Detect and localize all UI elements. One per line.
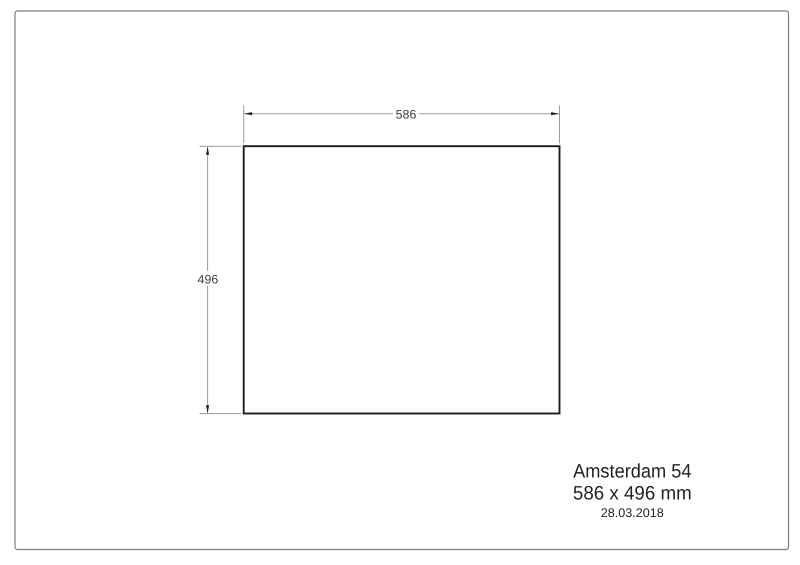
svg-text:496: 496: [198, 272, 219, 286]
svg-text:586: 586: [396, 107, 417, 121]
svg-text:586 x 496 mm: 586 x 496 mm: [573, 483, 692, 505]
svg-text:28.03.2018: 28.03.2018: [601, 506, 664, 520]
svg-text:Amsterdam 54: Amsterdam 54: [573, 461, 692, 483]
